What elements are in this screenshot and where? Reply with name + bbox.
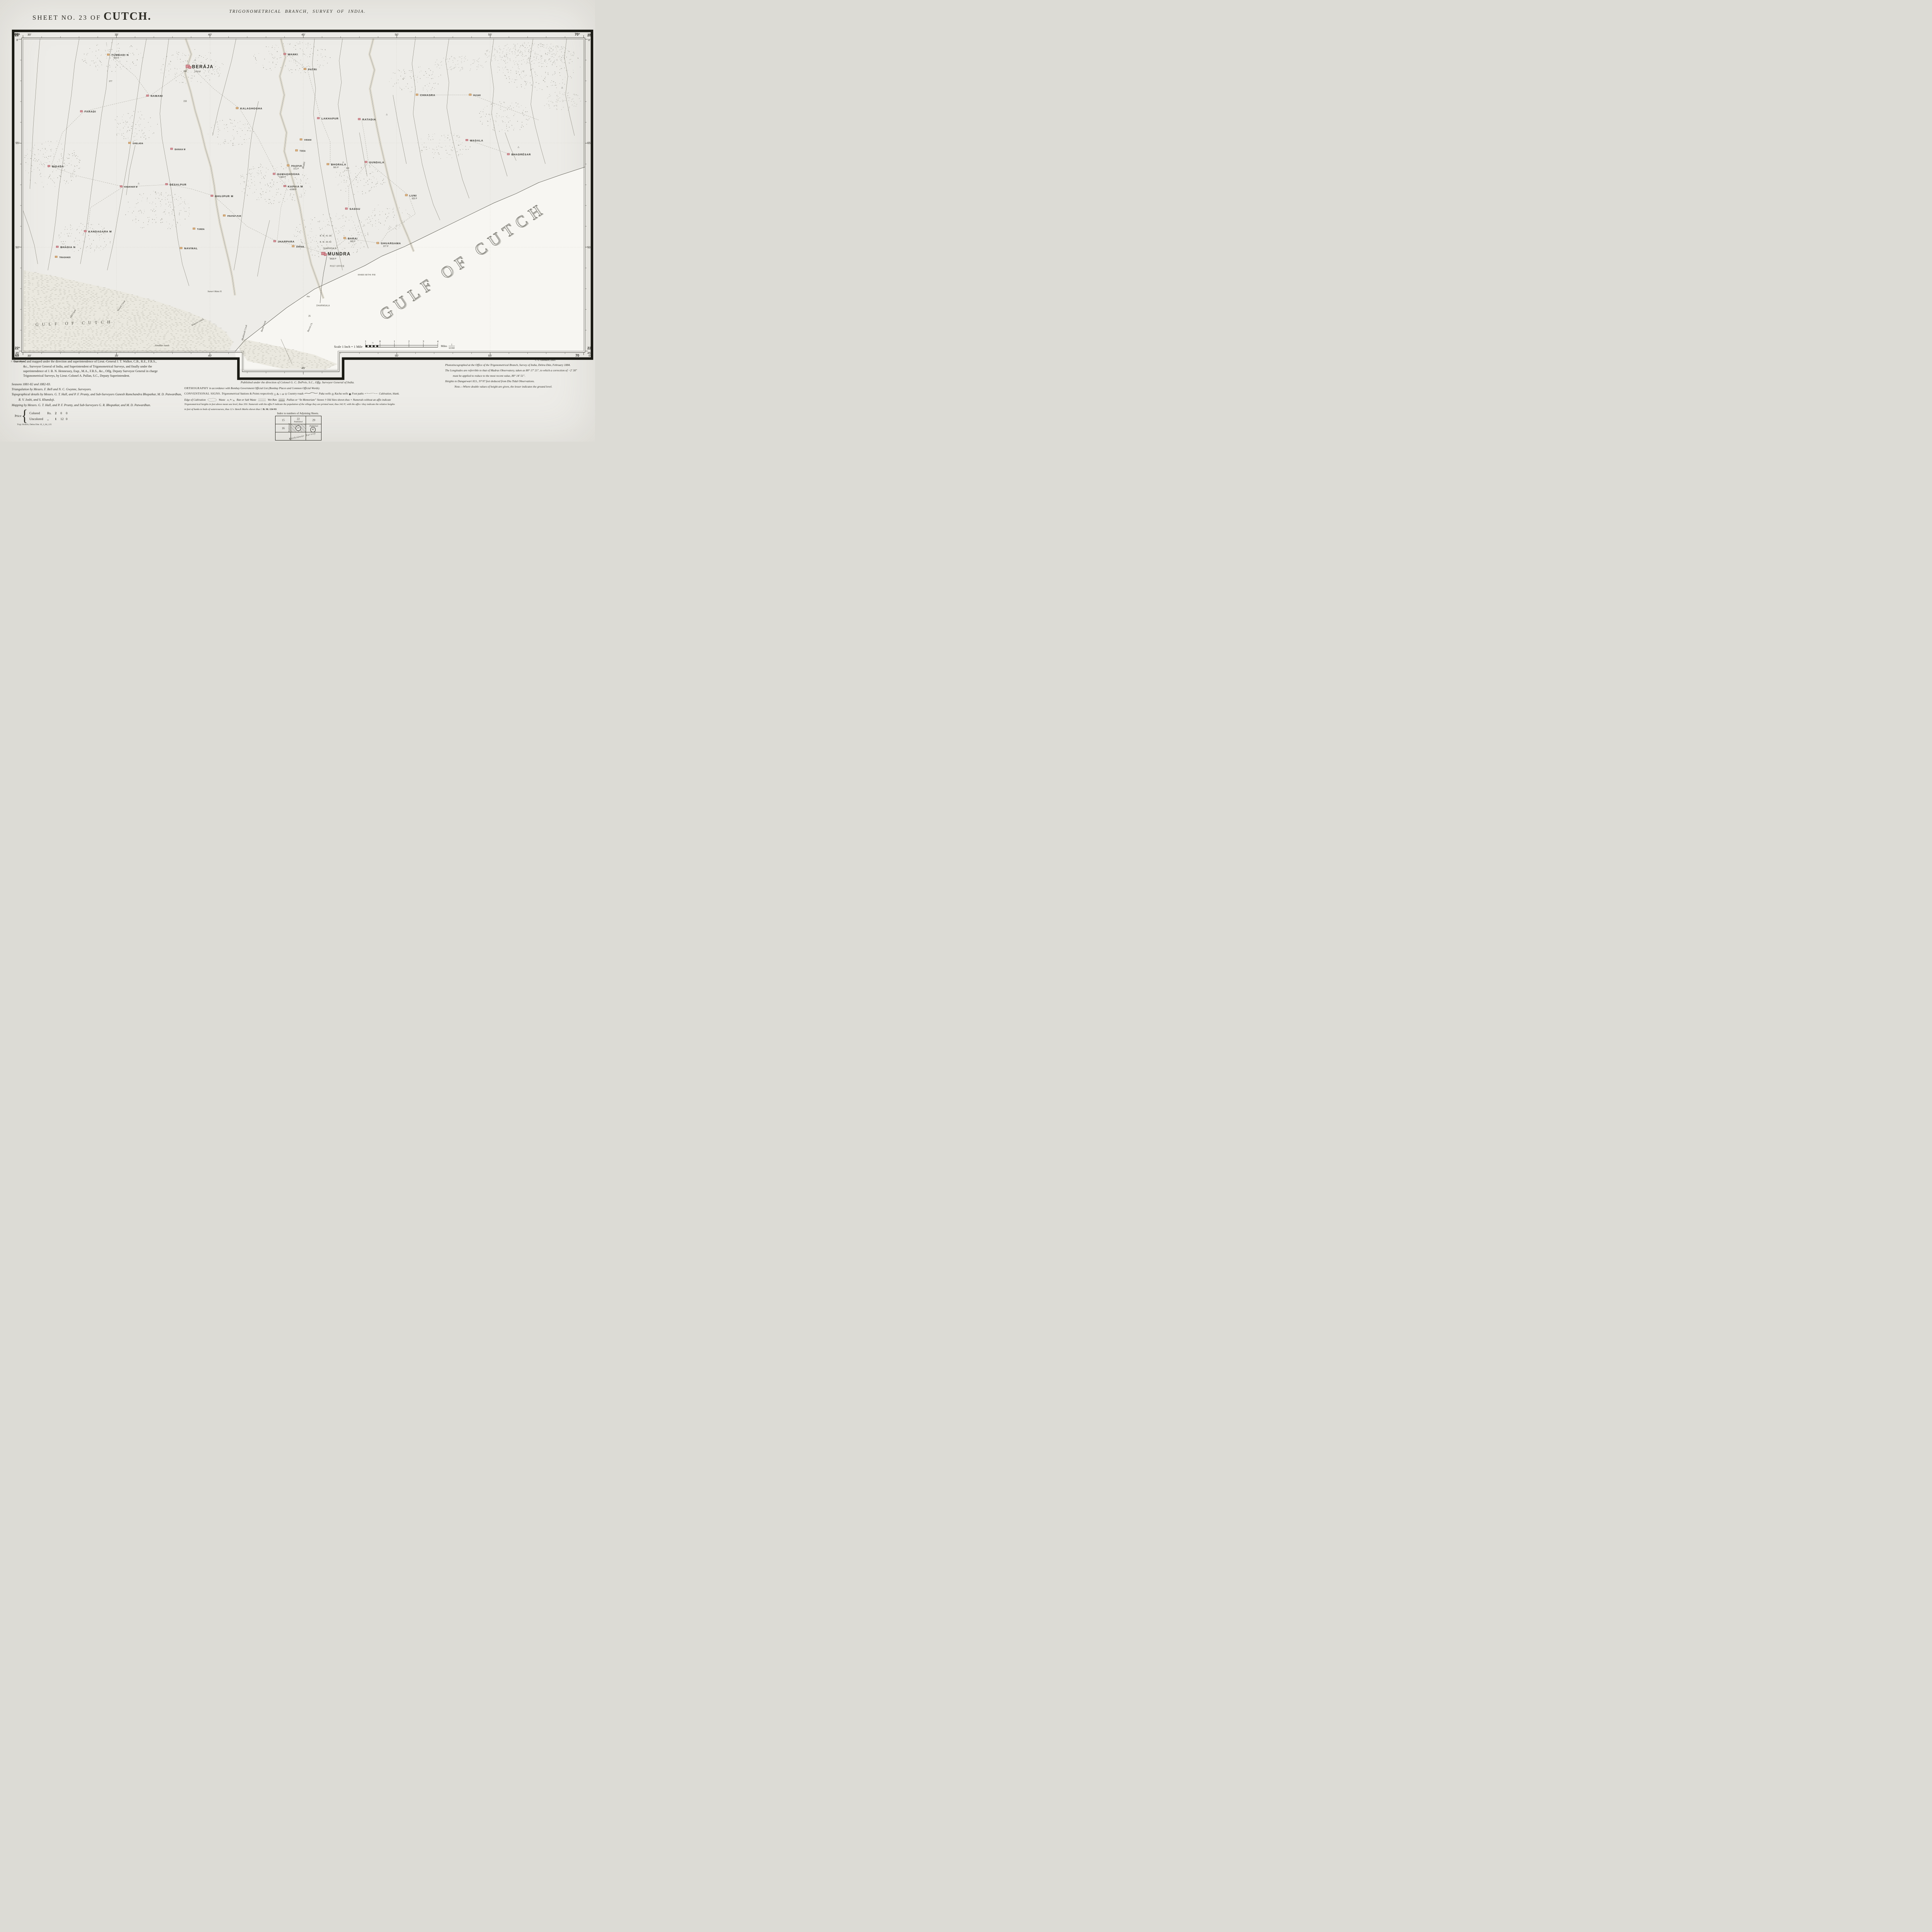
scrub-dot (196, 58, 196, 58)
scrub-dot (345, 191, 346, 191)
scrub-dot (87, 63, 87, 63)
scrub-dot (398, 224, 398, 225)
population-label: 8928 P (330, 258, 337, 260)
scrub-dot (340, 240, 341, 240)
longitude-note-2: must be applied to reduce to the most re… (453, 374, 525, 378)
hachure-stroke (571, 101, 572, 101)
hachure-stroke (545, 60, 546, 60)
scrub-dot (260, 193, 261, 194)
scrub-dot (440, 158, 441, 159)
hachure-stroke (499, 56, 500, 56)
hachure-stroke (568, 50, 568, 51)
scrub-dot (367, 219, 368, 219)
index-sheet-42: 42 (310, 427, 316, 432)
scrub-dot (288, 179, 289, 180)
scrub-dot (560, 83, 560, 84)
scrub-dot (570, 63, 570, 63)
hachure-stroke (553, 46, 554, 46)
scrub-dot (370, 173, 371, 174)
scrub-dot (519, 104, 519, 104)
scale-block (369, 345, 371, 347)
scrub-dot (220, 73, 221, 74)
scrub-dot (82, 230, 82, 230)
scrub-dot (311, 229, 311, 229)
village-label: WADALA (470, 139, 483, 142)
scrub-dot (318, 65, 318, 65)
conv-pallias-text: Pallias or “In Memoriam” Stones † (287, 398, 326, 401)
scrub-dot (499, 70, 500, 70)
scrub-dot (179, 214, 179, 214)
scrub-dot (371, 221, 371, 221)
scrub-dot (142, 58, 142, 58)
hachure-stroke (485, 62, 486, 62)
hachure-stroke (514, 45, 515, 45)
hachure-stroke (532, 50, 533, 51)
scrub-dot (521, 73, 522, 73)
scrub-dot (116, 67, 116, 68)
scrub-dot (351, 247, 352, 247)
scrub-dot (493, 126, 494, 126)
hachure-stroke (462, 68, 463, 68)
scrub-dot (235, 126, 236, 127)
scrub-dot (514, 116, 514, 116)
scrub-dot (422, 152, 422, 153)
scrub-dot (546, 54, 546, 54)
scrub-dot (480, 111, 481, 112)
scrub-dot (102, 229, 103, 230)
scrub-dot (124, 139, 124, 139)
scrub-dot (150, 117, 151, 118)
scrub-dot (301, 240, 301, 240)
scrub-dot (162, 70, 162, 70)
scrub-dot (147, 199, 147, 200)
village-label: DHARMSALA (316, 305, 330, 307)
scrub-dot (526, 83, 527, 84)
scrub-dot (406, 210, 406, 210)
adjoining-sheets-index: 15 22 Published 29 16 23 Published 42 Pu… (275, 416, 321, 440)
scrub-dot (571, 78, 571, 78)
scrub-dot (399, 228, 399, 228)
scrub-dot (430, 139, 431, 140)
scrub-dot (527, 120, 528, 121)
scrub-dot (393, 211, 393, 212)
scrub-dot (330, 218, 331, 218)
hachure-stroke (536, 54, 537, 54)
population-label: 1350 P (279, 176, 286, 179)
scrub-dot (375, 221, 376, 221)
scrub-dot (69, 158, 70, 159)
scrub-dot (340, 232, 340, 233)
scrub-dot (515, 47, 515, 48)
scrub-dot (356, 166, 357, 167)
scrub-dot (97, 44, 98, 45)
scrub-dot (107, 46, 107, 46)
scrub-dot (143, 222, 144, 223)
scrub-dot (71, 236, 71, 236)
scrub-dot (208, 134, 208, 134)
scrub-dot (209, 80, 210, 80)
scrub-dot (137, 60, 138, 60)
scrub-dot (332, 236, 332, 237)
scrub-dot (295, 177, 296, 178)
hachure-stroke (551, 44, 551, 44)
scrub-dot (168, 66, 168, 66)
scrub-dot (429, 75, 430, 76)
scrub-dot (271, 187, 272, 187)
scrub-dot (417, 80, 417, 80)
scrub-dot (136, 204, 136, 204)
scrub-dot (553, 50, 553, 51)
scrub-dot (117, 116, 118, 117)
scrub-dot (207, 75, 207, 76)
scrub-dot (142, 130, 143, 131)
scrub-dot (277, 182, 277, 183)
scrub-dot (217, 71, 217, 72)
scrub-dot (110, 58, 111, 58)
scrub-dot (162, 222, 163, 223)
scrub-dot (214, 64, 215, 64)
scrub-dot (556, 88, 557, 88)
scrub-dot (218, 68, 218, 69)
country-road (88, 185, 327, 254)
scrub-dot (285, 182, 285, 182)
scrub-dot (323, 221, 324, 221)
scrub-dot (192, 78, 192, 78)
scrub-dot (108, 238, 109, 238)
population-label: 501 P (333, 167, 339, 169)
scrub-dot (199, 55, 200, 56)
scrub-dot (47, 163, 47, 163)
scrub-dot (482, 122, 483, 123)
scrub-dot (178, 205, 179, 206)
mapping-line: Mapping by Messrs. G. T. Hall, and P. F.… (12, 403, 151, 407)
foot-path-symbol (364, 392, 378, 396)
scrub-dot (139, 211, 139, 211)
scrub-dot (305, 227, 306, 228)
scrub-dot (459, 136, 460, 136)
scrub-dot (97, 70, 98, 70)
imprint-line: Trigl. Branch, Dehra Dún 19_3_84_125 (17, 423, 52, 426)
scrub-dot (256, 189, 257, 190)
scrub-dot (439, 154, 440, 155)
scrub-dot (345, 221, 346, 222)
scrub-dot (432, 152, 433, 153)
scrub-dot (366, 238, 366, 239)
hachure-stroke (507, 57, 508, 58)
stream (393, 95, 406, 164)
scrub-dot (49, 145, 49, 146)
scrub-dot (261, 197, 261, 197)
scrub-dot (169, 224, 170, 224)
scrub-dot (66, 157, 67, 158)
stream (23, 211, 38, 264)
scrub-dot (374, 216, 375, 216)
scrub-dot (310, 231, 310, 231)
scrub-dot (185, 219, 185, 219)
scrub-dot (346, 188, 346, 189)
scrub-dot (291, 61, 291, 61)
hachure-stroke (452, 60, 453, 60)
country-road (51, 67, 192, 167)
scrub-dot (308, 43, 308, 44)
scrub-dot (434, 154, 434, 154)
scrub-dot (425, 71, 426, 72)
scrub-dot (519, 69, 519, 69)
hachure-stroke (556, 109, 557, 110)
scrub-dot (176, 80, 177, 81)
scrub-dot (244, 193, 245, 193)
scrub-dot (499, 108, 500, 109)
stream (30, 39, 40, 189)
scrub-dot (389, 228, 389, 228)
scrub-dot (128, 211, 128, 212)
wet-ran-swatch (279, 399, 285, 402)
hachure-stroke (540, 44, 541, 44)
scrub-dot (205, 79, 205, 79)
scrub-dot (322, 229, 322, 229)
scrub-dot (116, 134, 117, 134)
hachure-stroke (526, 63, 527, 64)
scrub-dot (64, 244, 64, 244)
scrub-dot (548, 72, 548, 73)
scrub-dot (290, 43, 290, 44)
hachure-stroke (530, 58, 531, 59)
scrub-dot (437, 149, 437, 150)
scrub-dot (72, 153, 73, 154)
water-feature-label: Bhukhandi Creek (241, 325, 248, 341)
scrub-dot (278, 189, 279, 189)
trig-station-icon: △ (194, 59, 196, 61)
scrub-dot (516, 77, 517, 77)
scrub-dot (523, 110, 524, 111)
scrub-dot (177, 53, 177, 53)
scrub-dot (517, 121, 518, 122)
scrub-dot (106, 57, 107, 57)
scrub-dot (133, 141, 134, 142)
scrub-dot (61, 144, 61, 144)
scrub-dot (357, 250, 358, 250)
scrub-dot (127, 132, 127, 132)
scrub-dot (207, 58, 207, 59)
scrub-dot (560, 56, 560, 57)
scrub-dot (359, 168, 359, 169)
scrub-dot (552, 56, 553, 56)
scrub-dot (398, 80, 398, 80)
village-label: NAMANI (151, 95, 163, 98)
scale-block (366, 345, 367, 347)
scrub-dot (304, 220, 304, 220)
scrub-dot (459, 141, 459, 141)
orthography-line: ORTHOGRAPHY in accordance with Bombay Go… (184, 386, 320, 390)
scrub-dot (51, 156, 51, 156)
scrub-dot (164, 211, 165, 212)
scrub-dot (170, 202, 171, 202)
scrub-dot (75, 156, 76, 156)
scrub-dot (74, 153, 75, 153)
scrub-dot (363, 231, 363, 231)
scrub-dot (332, 235, 332, 236)
hachure-stroke (579, 98, 580, 99)
scrub-dot (354, 222, 354, 222)
scrub-dot (361, 168, 361, 168)
scrub-dot (168, 71, 169, 71)
scrub-dot (148, 122, 148, 122)
scrub-dot (551, 85, 551, 86)
scrub-dot (503, 70, 504, 70)
scrub-dot (249, 128, 249, 128)
scrub-dot (88, 235, 89, 236)
scrub-dot (129, 207, 130, 208)
scrub-dot (249, 173, 250, 174)
scrub-dot (303, 67, 303, 68)
hachure-stroke (564, 47, 565, 48)
scrub-dot (181, 82, 182, 82)
scrub-dot (311, 242, 311, 242)
scrub-dot (216, 70, 217, 70)
scrub-dot (561, 46, 561, 47)
scrub-dot (310, 187, 311, 187)
scrub-dot (281, 194, 281, 195)
scale-mile-number: 1 (394, 340, 395, 343)
scrub-dot (560, 70, 560, 70)
scrub-dot (112, 49, 112, 50)
hachure-stroke (524, 43, 525, 44)
scrub-dot (438, 146, 439, 146)
scrub-dot (257, 173, 257, 173)
hachure-stroke (535, 52, 536, 52)
scrub-dot (431, 90, 431, 90)
scrub-dot (548, 60, 549, 61)
scrub-dot (195, 62, 195, 63)
scrub-dot (276, 194, 276, 195)
scrub-dot (342, 216, 343, 216)
scrub-dot (136, 216, 136, 217)
scrub-dot (545, 77, 546, 77)
scrub-dot (241, 144, 242, 145)
scrub-dot (237, 131, 238, 132)
scrub-dot (436, 147, 437, 147)
scrub-dot (516, 73, 517, 74)
scrub-dot (324, 60, 324, 61)
hachure-stroke (546, 104, 547, 104)
scrub-dot (86, 237, 86, 237)
scrub-dot (513, 107, 514, 108)
scrub-dot (311, 250, 311, 250)
hachure-stroke (563, 107, 564, 107)
scrub-dot (428, 77, 428, 78)
scrub-dot (321, 49, 321, 49)
scrub-dot (444, 135, 444, 135)
scrub-dot (233, 126, 233, 127)
scrub-dot (254, 192, 255, 192)
scrub-dot (59, 175, 60, 176)
scrub-dot (41, 161, 41, 162)
scrub-dot (345, 170, 345, 170)
scrub-dot (28, 173, 29, 173)
scrub-dot (463, 149, 463, 150)
scrub-dot (122, 120, 122, 120)
scrub-dot (269, 203, 269, 204)
scrub-dot (137, 134, 137, 134)
hachure-stroke (487, 50, 488, 50)
price-kind: Colored (29, 410, 46, 416)
scrub-dot (556, 48, 557, 49)
scrub-dot (243, 176, 244, 177)
hachure-stroke (522, 56, 523, 56)
topo-line-2: R. V. Joshi, and S. Khandoji. (19, 398, 55, 401)
scrub-dot (319, 221, 320, 222)
scrub-dot (237, 133, 238, 134)
ground-level-note: Note.—Where double values of height are … (454, 385, 552, 388)
scrub-dot (148, 224, 148, 225)
scrub-dot (320, 250, 320, 251)
scrub-dot (345, 167, 345, 167)
scrub-dot (277, 59, 278, 60)
scrub-dot (72, 250, 72, 250)
hachure-stroke (567, 93, 568, 94)
scrub-dot (391, 227, 391, 228)
scale-block (376, 345, 378, 347)
scrub-dot (68, 236, 68, 236)
village-label: NAVINAL (184, 247, 198, 250)
scrub-dot (287, 54, 287, 54)
scrub-dot (256, 63, 256, 63)
scrub-dot (106, 43, 107, 44)
scrub-dot (101, 226, 102, 227)
scrub-dot (425, 85, 425, 86)
scrub-dot (184, 65, 184, 66)
hachure-stroke (488, 56, 489, 56)
scrub-dot (259, 199, 259, 200)
scrub-dot (159, 195, 160, 196)
scrub-dot (325, 226, 326, 226)
scrub-dot (61, 158, 61, 159)
scrub-dot (516, 71, 517, 71)
hachure-stroke (508, 48, 509, 48)
scrub-dot (525, 77, 526, 77)
scrub-dot (336, 228, 337, 228)
scrub-dot (42, 182, 42, 182)
scrub-dot (161, 192, 162, 193)
scrub-dot (364, 185, 364, 186)
hachure-stroke (499, 53, 500, 53)
scrub-dot (152, 211, 153, 211)
scrub-dot (523, 46, 524, 47)
scrub-dot (529, 60, 529, 60)
scrub-dot (71, 226, 71, 226)
scrub-dot (107, 71, 108, 71)
scrub-dot (273, 184, 274, 185)
scrub-dot (355, 243, 356, 244)
hachure-stroke (562, 94, 563, 94)
scrub-dot (300, 183, 301, 184)
scrub-dot (426, 147, 427, 148)
village-label: VIRANI (304, 139, 312, 141)
scrub-dot (173, 55, 173, 56)
scale-mile-number: 4 (437, 340, 439, 343)
scrub-dot (284, 201, 285, 202)
scrub-dot (299, 44, 300, 44)
hachure-stroke (563, 100, 564, 100)
scrub-dot (141, 137, 141, 138)
scrub-dot (33, 149, 34, 149)
scrub-dot (382, 184, 382, 184)
scrub-dot (482, 124, 483, 124)
scrub-dot (86, 251, 86, 251)
scrub-dot (97, 235, 97, 235)
scrub-dot (71, 180, 72, 181)
scrub-dot (432, 136, 433, 137)
